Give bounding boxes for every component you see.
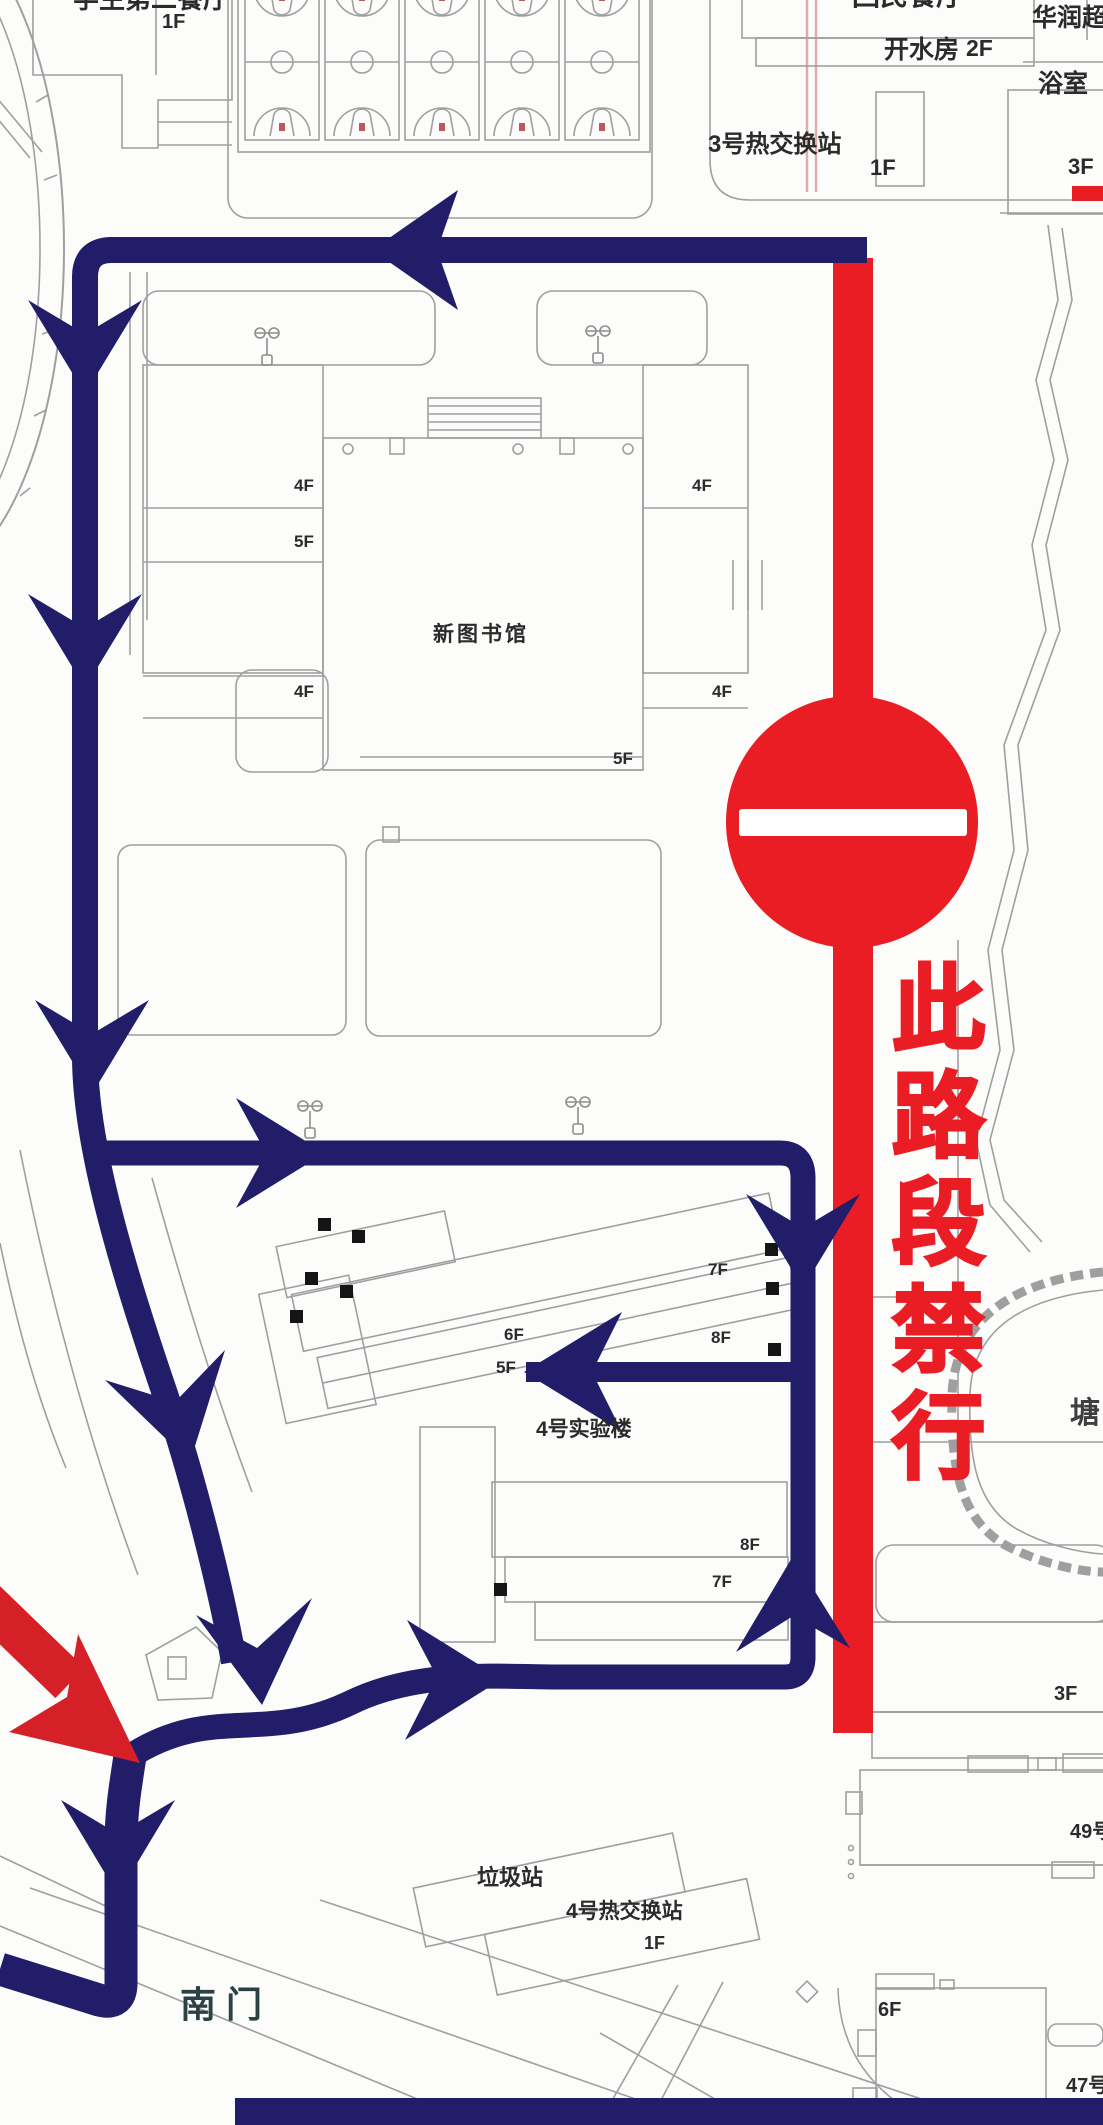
buildings-bottom-right bbox=[846, 1545, 1103, 2125]
basketball-court bbox=[405, 0, 479, 140]
building-garbage-station bbox=[413, 1820, 759, 2008]
basketball-courts bbox=[228, 0, 652, 218]
street-lamp-icon bbox=[255, 328, 279, 365]
street-lamp-icon bbox=[298, 1101, 322, 1138]
street-lamp-icon bbox=[586, 326, 610, 363]
building-lab-4-lower bbox=[420, 1427, 788, 1642]
entry-arrow-icon bbox=[0, 1594, 140, 1763]
stadium-track bbox=[0, 0, 64, 580]
route-branch-east bbox=[95, 1153, 803, 1178]
building-student-canteen-2 bbox=[0, 0, 232, 158]
buildings-top-right bbox=[710, 0, 1103, 214]
no-entry-sign-icon bbox=[726, 696, 978, 948]
basketball-court bbox=[325, 0, 399, 140]
basketball-court bbox=[565, 0, 639, 140]
footer-banner bbox=[235, 2098, 1103, 2125]
gate-kiosk bbox=[146, 1627, 222, 1700]
courtyard-blocks bbox=[118, 827, 661, 1036]
closed-road-bar bbox=[833, 258, 873, 1733]
route-main-west bbox=[85, 250, 867, 1662]
street-lamp-icon bbox=[566, 1097, 590, 1134]
building-new-library bbox=[143, 291, 762, 772]
basketball-court bbox=[485, 0, 559, 140]
campus-map: 学生第二餐厅1F回民餐厅华润超市开水房2F浴室3号热交换站1F3F4F5F4F4… bbox=[0, 0, 1103, 2125]
closed-road-dash bbox=[1072, 186, 1103, 201]
basketball-court bbox=[245, 0, 319, 140]
fence-line bbox=[807, 0, 816, 192]
road-marker bbox=[796, 1981, 817, 2002]
closure-vertical-text: 此路段禁行 bbox=[883, 960, 976, 1495]
